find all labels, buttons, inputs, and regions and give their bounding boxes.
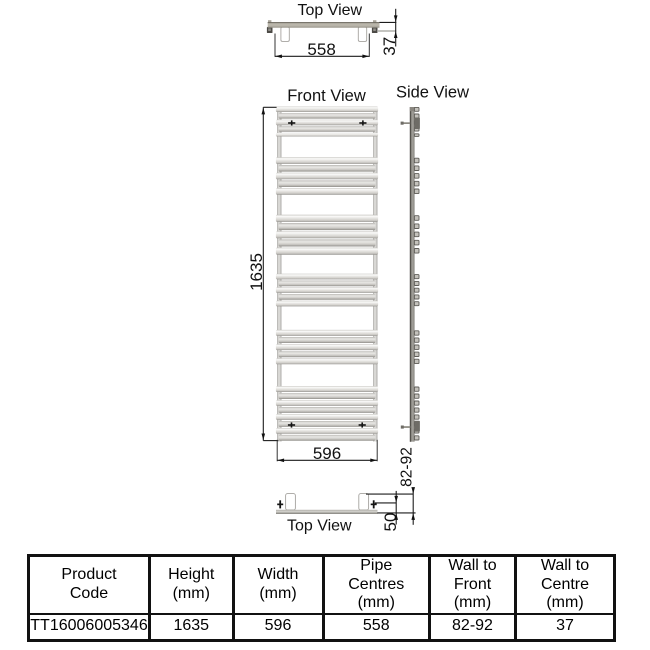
svg-text:82-92: 82-92 xyxy=(399,447,416,487)
svg-text:Side View: Side View xyxy=(396,84,469,102)
svg-text:Top View: Top View xyxy=(297,2,362,19)
svg-text:Top View: Top View xyxy=(287,517,352,534)
svg-text:50: 50 xyxy=(381,513,400,532)
svg-text:37: 37 xyxy=(380,37,399,56)
svg-text:558: 558 xyxy=(307,40,335,59)
svg-text:Front View: Front View xyxy=(287,87,366,105)
svg-text:596: 596 xyxy=(313,444,341,463)
svg-text:1635: 1635 xyxy=(247,253,266,291)
